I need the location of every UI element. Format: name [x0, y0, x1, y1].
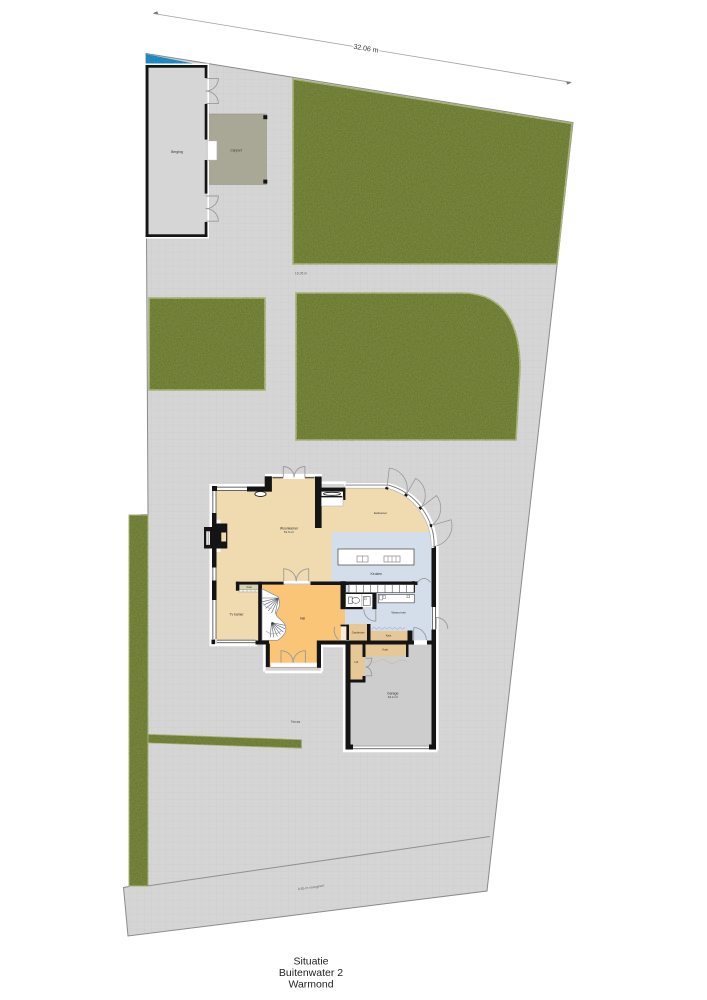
svg-text:Hal: Hal [300, 617, 305, 621]
svg-text:Wasruimte: Wasruimte [391, 610, 406, 614]
svg-text:Keuken: Keuken [371, 572, 383, 576]
svg-text:44.2 m²: 44.2 m² [388, 695, 398, 699]
svg-text:Warmond: Warmond [288, 979, 333, 991]
svg-text:Situatie: Situatie [293, 956, 328, 968]
svg-text:51.9 m²: 51.9 m² [284, 530, 294, 534]
svg-text:Berging: Berging [171, 150, 183, 154]
svg-text:Lift: Lift [354, 660, 358, 664]
svg-text:Kast: Kast [382, 648, 388, 652]
svg-text:Eetkamer: Eetkamer [374, 511, 387, 515]
svg-text:16.05 m: 16.05 m [295, 272, 307, 276]
svg-text:Tv kamer: Tv kamer [229, 613, 244, 617]
svg-text:Kast: Kast [247, 585, 252, 589]
svg-text:Terras: Terras [291, 720, 301, 724]
svg-text:Kast: Kast [386, 634, 392, 638]
svg-text:Carport: Carport [230, 149, 241, 153]
svg-text:Buitenwater 2: Buitenwater 2 [279, 967, 343, 979]
svg-text:Garderobe: Garderobe [352, 631, 365, 635]
